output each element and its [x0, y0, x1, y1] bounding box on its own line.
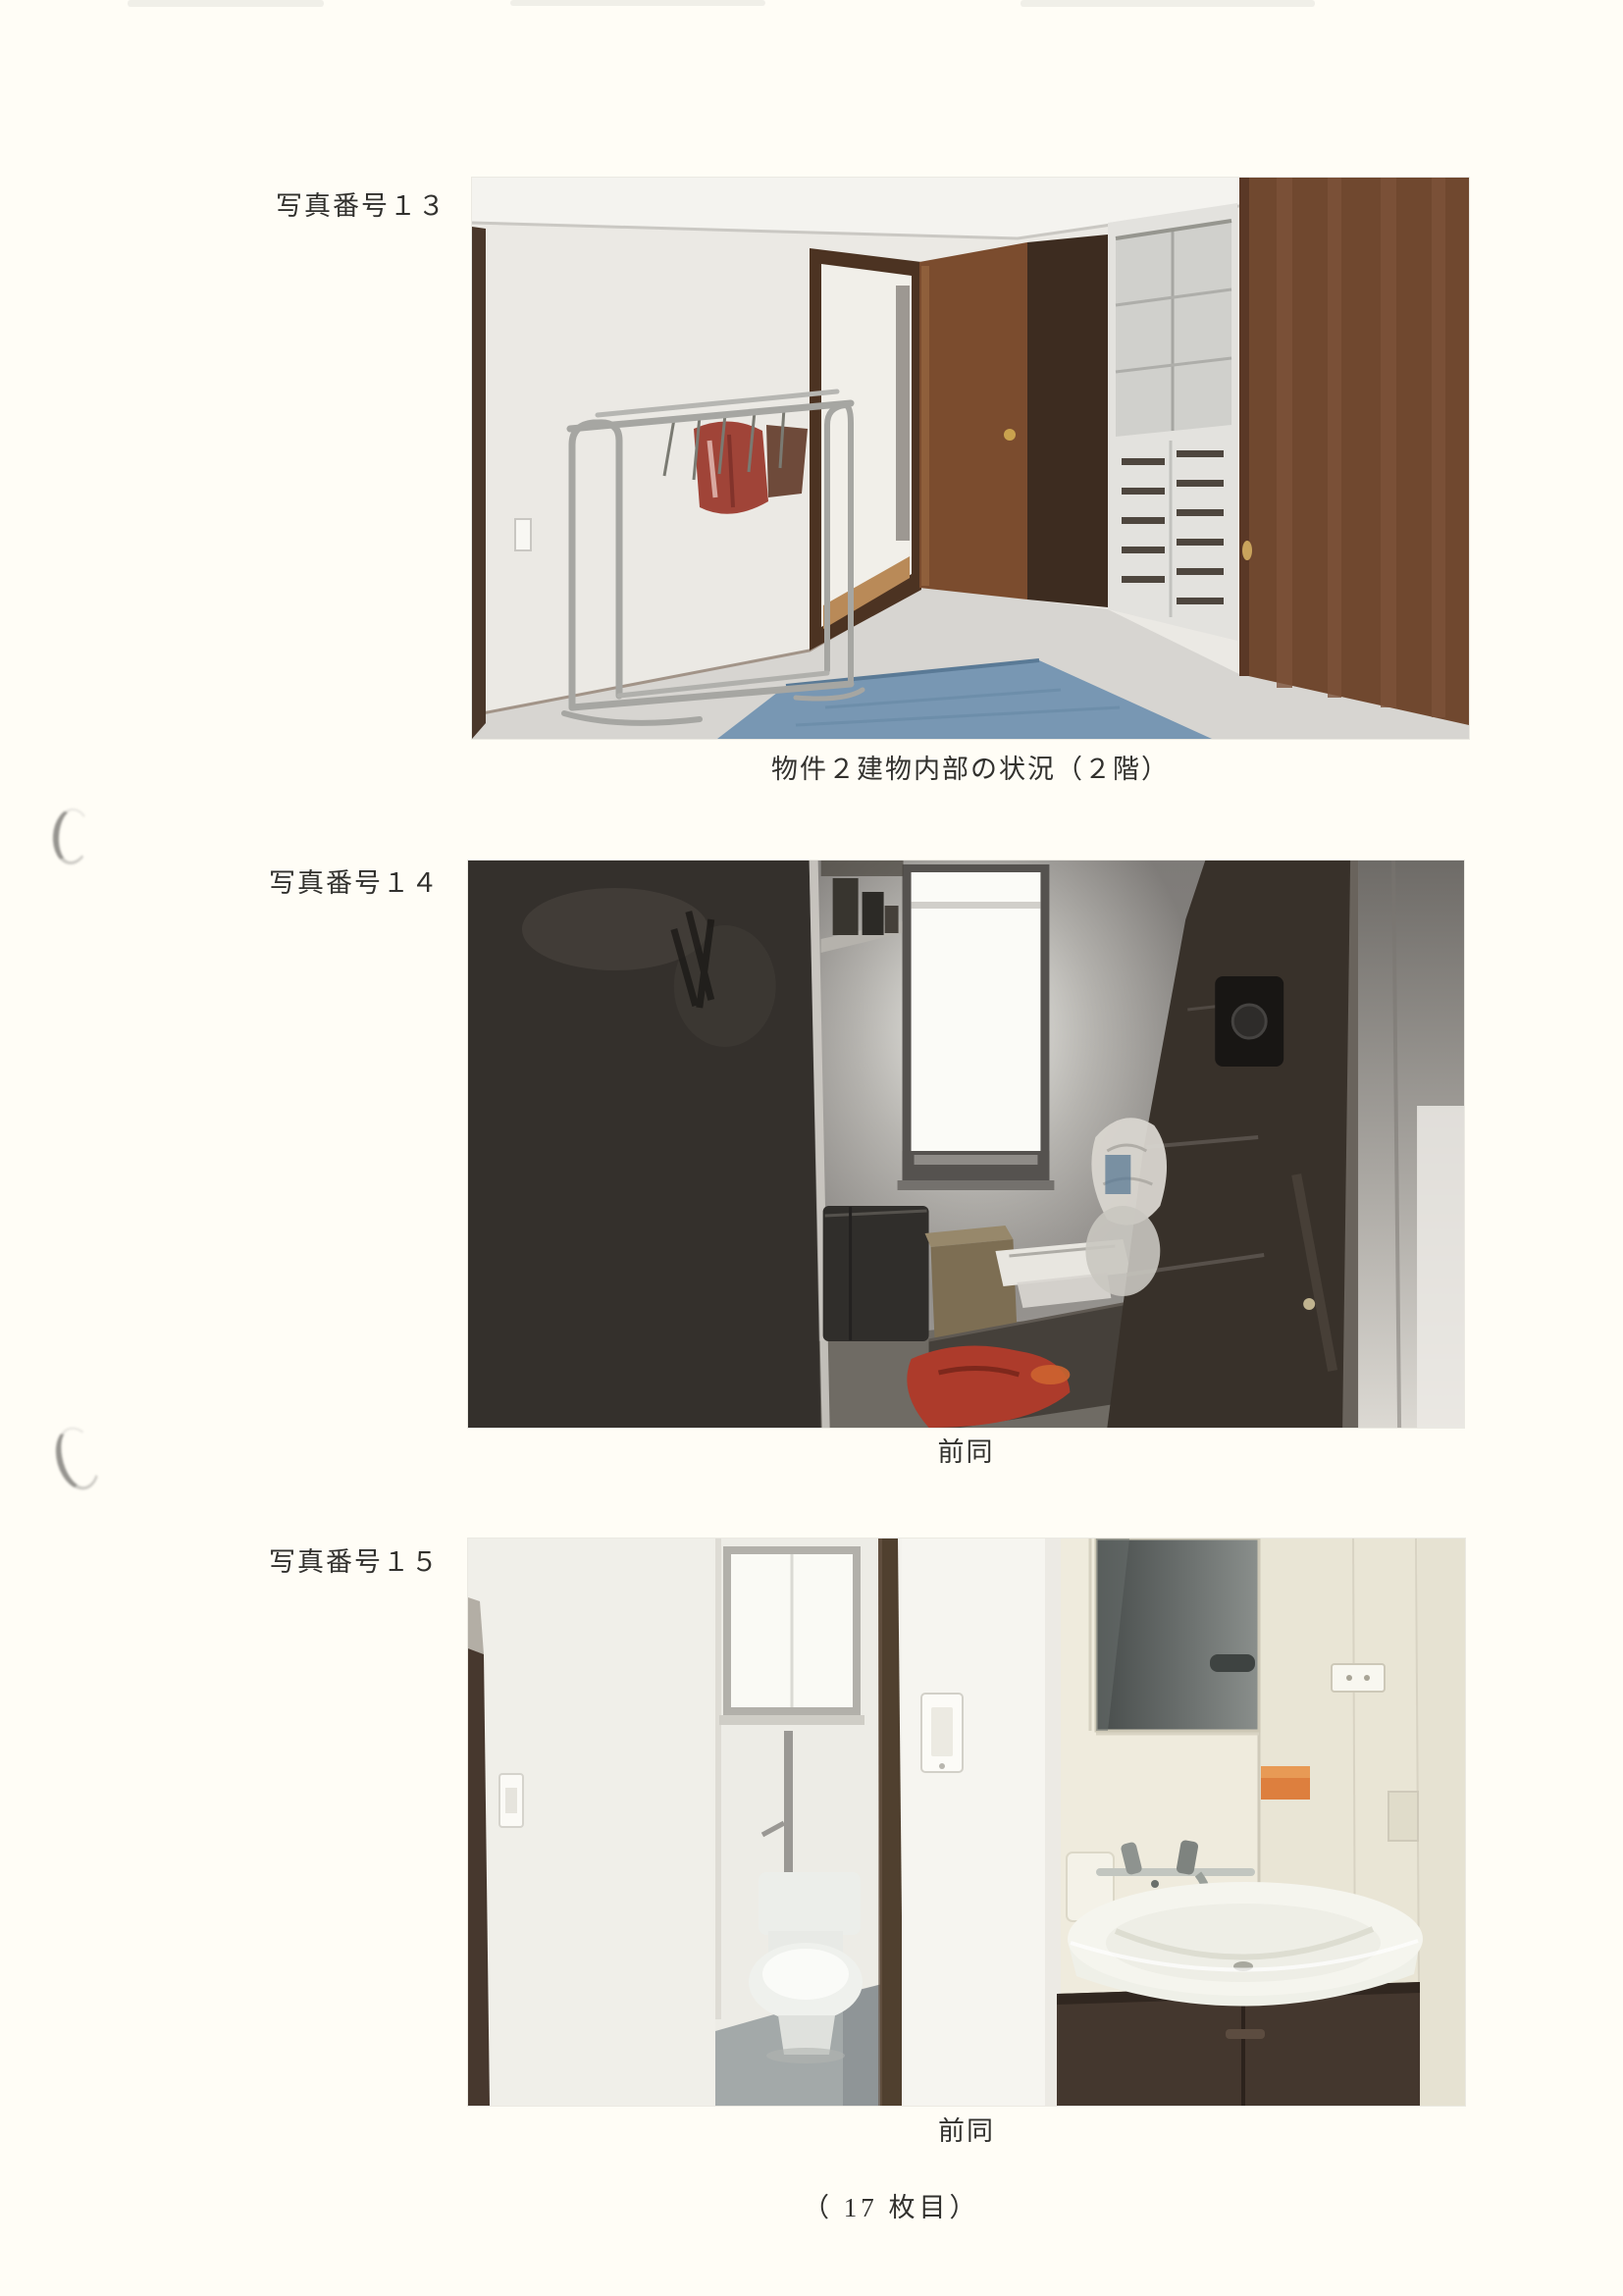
page-number-note: （ 17 枚目）: [803, 2186, 980, 2224]
open-doorway: [810, 235, 1108, 651]
photo-14-label: 写真番号１４: [269, 861, 440, 900]
photo-15-caption: 前同: [468, 2110, 1465, 2148]
storage-room-scene: [468, 861, 1464, 1428]
photo-13-label: 写真番号１３: [276, 184, 446, 223]
dark-wardrobe-left: [468, 861, 830, 1428]
bright-window: [898, 864, 1055, 1190]
bedroom-scene: [472, 178, 1469, 739]
punch-hole-shadow: [49, 1422, 106, 1494]
photo-13-image: [472, 178, 1469, 739]
photo-14-caption: 前同: [468, 1431, 1464, 1469]
photo-15-image: [468, 1539, 1465, 2106]
scanner-artifact: [1021, 0, 1315, 7]
washed-out-right-edge: [1342, 861, 1464, 1428]
photo-14-image: [468, 861, 1464, 1428]
center-partition: [902, 1539, 1061, 2106]
wardrobe-door: [1239, 178, 1469, 725]
toilet-room: [715, 1539, 882, 2106]
punch-hole-shadow: [51, 808, 92, 866]
scanned-photo-report-page: { "photos": [ { "label": "写真番号１３", "capt…: [0, 0, 1623, 2296]
photo-13-caption: 物件２建物内部の状況（２階）: [472, 748, 1469, 786]
white-shelf-cabinet: [1108, 203, 1237, 641]
scanner-artifact: [510, 0, 765, 6]
photo-15-label: 写真番号１５: [269, 1540, 440, 1579]
bathroom-scene: [468, 1539, 1465, 2106]
vanity-unit: [1057, 1539, 1465, 2106]
scanner-artifact: [128, 0, 324, 7]
